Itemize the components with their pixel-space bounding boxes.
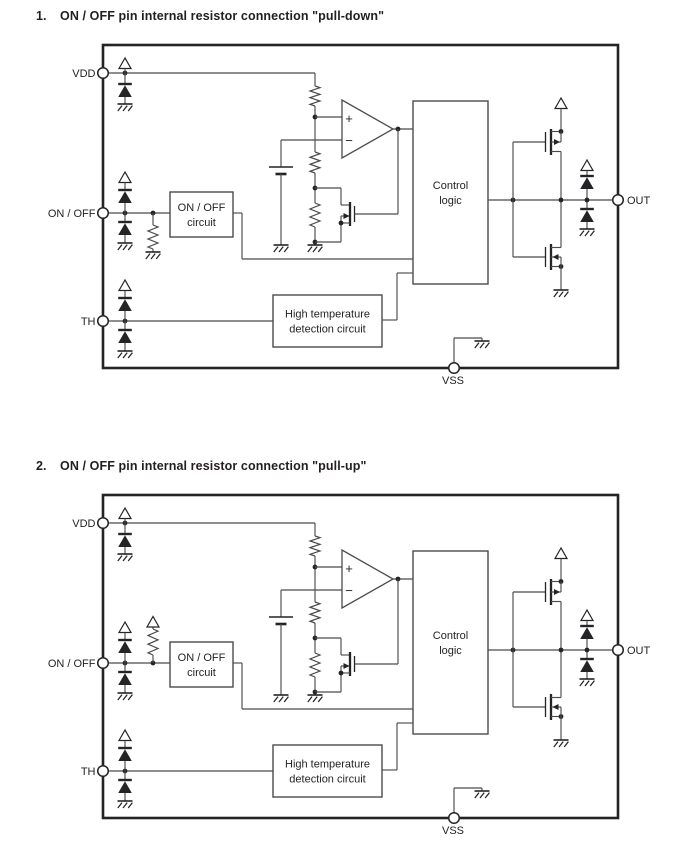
diode-icon	[118, 780, 132, 793]
out-pin-terminal	[613, 195, 624, 206]
vdd-arrow-icon	[555, 98, 567, 109]
th-pin-group: TH	[81, 730, 273, 808]
onoff-to-control-wire	[233, 663, 413, 709]
vss-pin-terminal	[449, 363, 460, 374]
vdd-pin-label: VDD	[72, 518, 95, 530]
diode-icon	[118, 298, 132, 311]
high-temp-box: High temperaturedetection circuit	[273, 745, 382, 797]
diode-icon	[118, 748, 132, 761]
hysteresis-mosfet	[315, 638, 398, 692]
esd-protection	[118, 280, 133, 358]
vss-pin-label: VSS	[442, 375, 464, 387]
diode-icon	[580, 176, 594, 189]
vdd-pin-terminal	[98, 518, 109, 529]
th-pin-terminal	[98, 766, 109, 777]
diode-icon	[118, 84, 132, 97]
output-nmos	[546, 650, 569, 747]
resistor-icon	[310, 653, 320, 677]
diode-icon	[580, 659, 594, 672]
vdd-arrow-icon	[119, 730, 131, 741]
onoff-circuit-box-label: ON / OFF	[178, 652, 226, 664]
comparator-minus-label: −	[345, 133, 353, 148]
comparator-minus-label: −	[345, 583, 353, 598]
vdd-arrow-icon	[581, 160, 593, 171]
resistor-icon	[310, 203, 320, 227]
circuit-diagram-pull-up: VDD+−ON / OFFON / OFFcircuitTHHigh tempe…	[0, 450, 673, 843]
out-pin-group: OUT	[613, 645, 651, 657]
voltage-reference-icon	[269, 617, 293, 624]
diode-icon	[118, 330, 132, 343]
vdd-arrow-icon	[119, 280, 131, 291]
onoff-pin-group: ON / OFF	[48, 617, 170, 701]
out-pin-group: OUT	[613, 195, 651, 207]
circuit-diagram-pull-down: VDD+−ON / OFFON / OFFcircuitTHHigh tempe…	[0, 0, 673, 400]
control-logic-box-label: Control	[433, 630, 468, 642]
output-stage	[488, 548, 618, 747]
th-pin-group: TH	[81, 280, 273, 358]
resistor-icon	[148, 629, 158, 655]
control-logic-box: Controllogic	[413, 551, 488, 734]
output-pmos	[546, 98, 568, 200]
ground-icon	[475, 341, 490, 348]
vdd-pin-terminal	[98, 68, 109, 79]
ground-icon	[118, 801, 133, 808]
resistor-icon	[310, 536, 320, 556]
vdd-arrow-icon	[119, 172, 131, 183]
control-logic-box: Controllogic	[413, 101, 488, 284]
output-pmos	[546, 548, 568, 650]
comparator-plus-label: +	[345, 561, 353, 576]
voltage-reference-icon	[269, 167, 293, 174]
vdd-arrow-icon	[119, 58, 131, 69]
onoff-to-control-wire	[233, 213, 413, 259]
ground-icon	[118, 243, 133, 250]
diode-icon	[118, 190, 132, 203]
ground-icon	[118, 104, 133, 111]
vdd-pin-group: VDD	[72, 58, 315, 111]
resistor-icon	[148, 225, 158, 249]
high-temp-to-control-wire	[382, 723, 413, 770]
ground-icon	[118, 554, 133, 561]
onoff-pin-label: ON / OFF	[48, 658, 96, 670]
output-esd-diodes	[580, 160, 595, 236]
ground-icon	[580, 679, 595, 686]
diode-icon	[580, 209, 594, 222]
pull-up-resistor	[147, 617, 159, 664]
out-pin-label: OUT	[627, 645, 651, 657]
ground-icon	[554, 740, 569, 747]
control-logic-box-label: logic	[439, 645, 462, 657]
ground-icon	[118, 351, 133, 358]
onoff-circuit-box: ON / OFFcircuit	[170, 642, 233, 687]
datasheet-page: 1. ON / OFF pin internal resistor connec…	[0, 0, 673, 843]
vss-pin-label: VSS	[442, 825, 464, 837]
onoff-circuit-box-label: circuit	[187, 217, 216, 229]
th-pin-terminal	[98, 316, 109, 327]
onoff-circuit-box: ON / OFFcircuit	[170, 192, 233, 237]
esd-protection	[118, 172, 133, 250]
comparator: +−	[342, 550, 413, 664]
high-temp-box-label: detection circuit	[289, 774, 365, 786]
resistor-icon	[310, 152, 320, 173]
high-temp-to-control-wire	[382, 273, 413, 320]
control-logic-box-label: logic	[439, 195, 462, 207]
out-pin-terminal	[613, 645, 624, 656]
ground-icon	[274, 245, 289, 252]
resistor-icon	[310, 602, 320, 623]
output-esd-diodes	[580, 610, 595, 686]
diode-icon	[118, 672, 132, 685]
vdd-pin-label: VDD	[72, 68, 95, 80]
comparator: +−	[342, 100, 413, 214]
output-nmos	[546, 200, 569, 297]
circuit: VDD+−ON / OFFON / OFFcircuitTHHigh tempe…	[48, 495, 651, 837]
th-pin-label: TH	[81, 316, 96, 328]
control-logic-box-label: Control	[433, 180, 468, 192]
out-pin-label: OUT	[627, 195, 651, 207]
reference-branch	[269, 140, 342, 252]
ground-icon	[146, 252, 161, 259]
vdd-arrow-icon	[555, 548, 567, 559]
high-temp-box-label: High temperature	[285, 759, 370, 771]
hysteresis-mosfet	[315, 188, 398, 242]
onoff-circuit-box-label: ON / OFF	[178, 202, 226, 214]
ground-icon	[274, 695, 289, 702]
esd-protection	[118, 730, 133, 808]
pull-down-resistor	[146, 213, 161, 259]
high-temp-box-label: detection circuit	[289, 324, 365, 336]
onoff-pin-label: ON / OFF	[48, 208, 96, 220]
output-stage	[488, 98, 618, 297]
onoff-pin-terminal	[98, 208, 109, 219]
vdd-arrow-icon	[119, 622, 131, 633]
high-temp-box: High temperaturedetection circuit	[273, 295, 382, 347]
vss-pin-group: VSS	[442, 338, 490, 387]
onoff-circuit-box-label: circuit	[187, 667, 216, 679]
diode-icon	[580, 626, 594, 639]
diode-icon	[118, 640, 132, 653]
comparator-divider	[308, 73, 343, 252]
comparator-plus-label: +	[345, 111, 353, 126]
circuit: VDD+−ON / OFFON / OFFcircuitTHHigh tempe…	[48, 45, 651, 387]
onoff-pin-group: ON / OFF	[48, 172, 170, 259]
ground-icon	[554, 290, 569, 297]
diode-icon	[118, 534, 132, 547]
resistor-icon	[310, 86, 320, 106]
vdd-pin-group: VDD	[72, 508, 315, 561]
ground-icon	[308, 245, 323, 252]
diode-icon	[118, 222, 132, 235]
reference-branch	[269, 590, 342, 702]
ground-icon	[308, 695, 323, 702]
vss-pin-group: VSS	[442, 788, 490, 837]
onoff-pin-terminal	[98, 658, 109, 669]
high-temp-box-label: High temperature	[285, 309, 370, 321]
ground-icon	[118, 693, 133, 700]
esd-protection	[118, 622, 133, 700]
vdd-arrow-icon	[581, 610, 593, 621]
vss-pin-terminal	[449, 813, 460, 824]
vdd-arrow-icon	[147, 617, 159, 628]
comparator-divider	[308, 523, 343, 702]
ground-icon	[580, 229, 595, 236]
vdd-arrow-icon	[119, 508, 131, 519]
ground-icon	[475, 791, 490, 798]
th-pin-label: TH	[81, 766, 96, 778]
